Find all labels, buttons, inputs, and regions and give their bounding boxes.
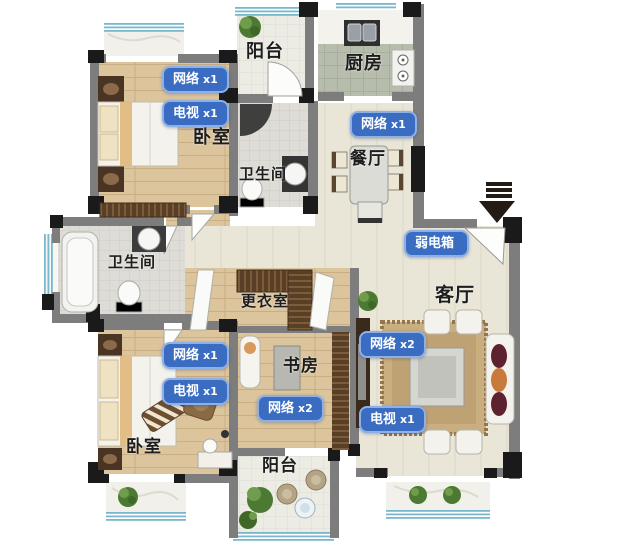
kitchen-sink (344, 20, 380, 46)
room-label-dressing-room: 更衣室 (241, 294, 289, 309)
window-balcony-bottom (233, 532, 334, 541)
toilet-bathroom-left (116, 281, 142, 312)
tag-weak-current-box[interactable]: 弱电箱 (404, 230, 469, 257)
room-label-balcony-bottom: 阳台 (262, 458, 298, 475)
room-label-bedroom-top: 卧室 (193, 129, 231, 147)
room-label-living: 客厅 (435, 286, 475, 305)
tag-tv-bedroom-bottom[interactable]: 电视x1 (162, 378, 229, 405)
window-balcony-top (235, 7, 307, 16)
room-label-bathroom-left: 卫生间 (108, 255, 156, 270)
floor-plan: 阳台 厨房 卧室 卫生间 餐厅 卫生间 更衣室 客厅 书房 卧室 阳台 网络x1… (0, 0, 617, 555)
room-label-bedroom-bottom: 卧室 (126, 439, 162, 456)
sofa (486, 334, 514, 424)
room-label-kitchen: 厨房 (345, 55, 383, 73)
tag-network-living[interactable]: 网络x2 (359, 331, 426, 358)
tag-network-bedroom-bottom[interactable]: 网络x1 (162, 342, 229, 369)
room-label-study: 书房 (283, 358, 319, 375)
room-label-balcony-top: 阳台 (246, 43, 284, 61)
tag-tv-bedroom-top[interactable]: 电视x1 (162, 100, 229, 127)
entrance-arrow-icon (479, 182, 515, 223)
window-kitchen (336, 3, 396, 8)
window-living-bay (386, 510, 490, 519)
bookshelf (332, 332, 349, 450)
floor-plan-drawing (0, 0, 617, 555)
dresser-bedroom-top (100, 203, 186, 217)
room-label-bathroom-top: 卫生间 (239, 167, 287, 182)
window-top-left-bay (104, 23, 184, 32)
tag-network-dining[interactable]: 网络x1 (350, 111, 417, 138)
kitchen-stove (392, 50, 414, 86)
plant-balcony-top (239, 16, 261, 38)
plant-living (358, 291, 378, 311)
window-bottom-left-bay (106, 512, 186, 521)
bay-window-top-left (104, 30, 184, 56)
tag-network-study[interactable]: 网络x2 (257, 395, 324, 422)
plant-bay-bottom-left (118, 487, 138, 507)
tag-network-bedroom-top[interactable]: 网络x1 (162, 66, 229, 93)
tag-tv-living[interactable]: 电视x1 (359, 406, 426, 433)
room-label-dining: 餐厅 (350, 151, 386, 168)
bathtub (62, 232, 98, 312)
